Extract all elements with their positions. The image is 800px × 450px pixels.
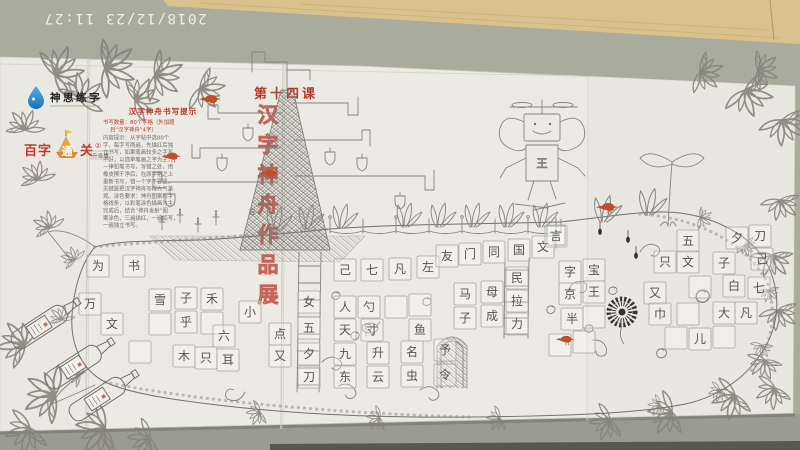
grid-cell: 国	[508, 239, 530, 261]
grid-cell-character: 子	[459, 311, 471, 325]
grid-cell-character: 马	[459, 287, 471, 301]
tips-body-line: 观。涂色要求：神舟图案和字	[103, 192, 173, 200]
grid-cell: 天	[334, 319, 356, 341]
grid-cell: 友	[436, 245, 458, 267]
grid-cell: 大	[713, 302, 735, 324]
grid-cell: 凡	[389, 258, 411, 280]
grid-cell: 母	[481, 281, 503, 303]
grid-cell: 凡	[735, 302, 757, 324]
grid-cell-character: 京	[564, 287, 576, 301]
tips-body-line: 完成后，结合“神舟发射”图	[103, 207, 168, 215]
grid-cell-character: 门	[464, 246, 476, 261]
grid-cell-box	[677, 303, 699, 325]
grid-cell-box	[409, 294, 431, 316]
grid-cell: 文	[101, 313, 123, 335]
grid-cell-character: 刀	[754, 229, 766, 243]
tips-body-line: 立书写，如果笔画较多之字写	[103, 148, 173, 156]
grid-cell: 六	[213, 325, 235, 347]
grid-cell-character: 儿	[694, 332, 706, 346]
grid-cell: 己	[751, 248, 773, 270]
grid-cell	[409, 294, 431, 316]
grid-cell: 予	[434, 339, 456, 361]
baizi-part2: 通	[62, 145, 73, 158]
grid-cell-character: 雪	[154, 293, 166, 307]
grid-cell: 又	[269, 345, 291, 367]
grid-cell-character: 拉	[511, 293, 523, 308]
grid-cell-character: 母	[486, 285, 498, 299]
grid-cell-character: 国	[513, 243, 525, 257]
grid-cell: 乎	[175, 311, 197, 333]
grid-cell-character: 左	[422, 259, 434, 274]
grid-cell-box	[713, 326, 735, 348]
tips-title: 汉字神舟书写提示	[129, 106, 198, 116]
grid-cell: 又	[644, 282, 666, 304]
grid-cell-character: 己	[339, 263, 351, 277]
grid-cell: 刀	[298, 366, 320, 388]
tips-body-line: 橡皮擦干净后，在原字格之上	[103, 170, 174, 178]
grid-cell: 只	[195, 347, 217, 369]
tips-body-line: 关键是把汉字神舟写得大气美	[103, 185, 174, 193]
grid-cell-character: 木	[178, 349, 190, 363]
grid-cell-character: 予	[439, 343, 451, 357]
grid-cell: 九	[334, 343, 356, 365]
grid-cell-character: 人	[339, 300, 351, 314]
grid-cell: 女	[298, 291, 320, 313]
grid-cell-character: 文	[682, 254, 694, 269]
grid-cell: 雪	[149, 289, 171, 311]
grid-cell-character: 王	[588, 285, 600, 299]
grid-cell: 只	[654, 251, 676, 273]
grid-cell-character: 升	[372, 346, 384, 360]
grid-cell: 木	[173, 345, 195, 367]
grid-cell: 夕	[298, 343, 320, 365]
grid-cell	[385, 296, 407, 318]
grid-cell: 为	[87, 255, 109, 277]
grid-cell-character: 又	[274, 349, 286, 363]
tips-body-line: 内容提示：从字帖中选80个	[103, 134, 170, 142]
grid-cell-character: 耳	[222, 353, 234, 367]
grid-cell-character: 字	[564, 264, 576, 279]
grid-cell-character: 云	[372, 370, 384, 384]
grid-cell: 马	[454, 283, 476, 305]
robot-eye	[534, 123, 536, 125]
grid-cell: 七	[361, 259, 383, 281]
grid-cell-character: 成	[486, 309, 498, 323]
tips-redline-1: 书写数量：80个字格（外加题	[103, 118, 175, 126]
grid-cell: 七	[748, 277, 770, 299]
grid-cell: 寸	[361, 319, 383, 341]
grid-cell-character: 九	[339, 347, 351, 361]
grid-cell: 拉	[506, 290, 528, 312]
grid-cell: 子	[713, 252, 735, 274]
grid-cell-character: 民	[511, 271, 523, 285]
grid-cell: 禾	[201, 288, 223, 310]
grid-cell-character: 宝	[588, 263, 600, 277]
grid-cell-character: 力	[511, 317, 523, 331]
grid-cell	[689, 276, 711, 298]
grid-cell: 力	[506, 313, 528, 335]
grid-cell-character: 只	[200, 351, 212, 365]
grid-cell-character: 五	[682, 234, 694, 248]
tips-body-line: 案涂色，三遍描红，一遍临写，	[103, 214, 178, 222]
tips-redline-2: 目“汉字神舟”4字）	[110, 126, 157, 134]
grid-cell-character: 为	[92, 259, 104, 273]
grid-cell-character: 小	[244, 305, 256, 319]
grid-cell-box	[665, 327, 687, 349]
grid-cell-character: 子	[180, 291, 192, 305]
grid-cell: 人	[334, 296, 356, 318]
tips-body-line: 重新书写，错一个字不要紧，	[103, 177, 173, 185]
grid-cell: 儿	[689, 328, 711, 350]
drop-highlight	[32, 97, 35, 100]
grid-cell	[583, 306, 605, 328]
grid-cell-character: 又	[649, 286, 661, 300]
grid-cell-character: 言	[550, 229, 562, 243]
grid-cell-character: 六	[218, 329, 230, 343]
grid-cell: 书	[123, 255, 145, 277]
grid-cell-character: 文	[106, 316, 118, 331]
grid-cell: 白	[723, 275, 745, 297]
grid-cell-box	[149, 313, 171, 335]
grid-cell-character: 五	[303, 321, 315, 335]
grid-cell-character: 天	[339, 323, 351, 337]
grid-cell-character: 刀	[303, 370, 315, 384]
grid-cell-character: 巾	[654, 307, 666, 321]
grid-cell: 虫	[401, 365, 423, 387]
grid-cell: 同	[483, 241, 505, 263]
tips-body-line: 格线条，以彩笔涂色描画为主，	[103, 199, 178, 207]
grid-cell-character: 鱼	[414, 323, 426, 337]
baizi-part1: 百字	[24, 143, 52, 159]
grid-cell: 耳	[217, 349, 239, 371]
grid-cell: 东	[334, 366, 356, 388]
grid-cell-character: 书	[128, 259, 140, 273]
grid-cell: 京	[559, 283, 581, 305]
grid-cell	[149, 313, 171, 335]
tips-body-line: 一律铅笔书写，写错之处，用	[103, 163, 173, 171]
grid-cell: 名	[401, 341, 423, 363]
grid-cell-box	[385, 296, 407, 318]
grid-cell-box	[573, 331, 595, 353]
grid-cell-character: 只	[659, 255, 671, 269]
camera-timestamp: 2018/12/23 11:27	[43, 10, 207, 26]
grid-cell: 五	[677, 230, 699, 252]
grid-cell-character: 虫	[406, 369, 418, 383]
grid-cell-character: 点	[274, 327, 286, 341]
grid-cell: 刀	[749, 225, 771, 247]
grid-cell: 民	[506, 267, 528, 289]
grid-cell	[129, 341, 151, 363]
grid-cell-character: 乎	[180, 315, 192, 329]
tree-character: 吉	[249, 208, 256, 216]
grid-cell-character: 友	[441, 249, 453, 263]
grid-cell: 巾	[649, 303, 671, 325]
grid-cell: 鱼	[409, 319, 431, 341]
grid-cell: 王	[583, 281, 605, 303]
grid-cell: 成	[481, 305, 503, 327]
tips-body-line: 字，每字写两遍，先描红后独	[103, 141, 174, 149]
grid-cell-character: 万	[84, 297, 96, 311]
grid-cell: 小	[239, 301, 261, 323]
grid-cell-character: 女	[303, 294, 315, 309]
grid-cell: 半	[561, 308, 583, 330]
grid-cell	[713, 326, 735, 348]
grid-cell: 子	[454, 307, 476, 329]
grid-cell-character: 七	[366, 263, 378, 277]
grid-cell	[677, 303, 699, 325]
grid-cell: 宝	[583, 259, 605, 281]
grid-cell-character: 东	[339, 370, 351, 384]
grid-cell: 子	[175, 287, 197, 309]
grid-cell: 字	[559, 261, 581, 283]
baizi-badge: ②	[95, 142, 101, 150]
grid-cell: 云	[367, 366, 389, 388]
grid-cell-character: 令	[439, 367, 451, 382]
grid-cell-box	[689, 276, 711, 298]
grid-cell: 文	[677, 251, 699, 273]
grid-cell-character: 同	[488, 245, 500, 259]
grid-cell-character: 勺	[363, 300, 375, 314]
grid-cell-box	[129, 341, 151, 363]
grid-cell: 门	[459, 243, 481, 265]
grid-cell-character: 大	[718, 306, 730, 320]
grid-cell-character: 凡	[394, 262, 406, 276]
grid-cell-character: 禾	[206, 292, 218, 306]
grid-cell-character: 己	[756, 252, 768, 266]
robot-chest-char: 王	[537, 157, 548, 170]
grid-cell: 点	[269, 323, 291, 345]
grid-cell-box	[583, 306, 605, 328]
photo-scene: 2018/12/23 11:27	[0, 0, 800, 450]
photo-of-worksheet: 2018/12/23 11:27	[0, 0, 800, 450]
grid-cell-character: 夕	[731, 231, 743, 245]
tips-body-line: 一遍独立书写。	[103, 221, 141, 229]
grid-cell-character: 夕	[303, 347, 315, 361]
grid-cell: 万	[79, 293, 101, 315]
grid-cell	[573, 331, 595, 353]
grid-cell: 己	[334, 259, 356, 281]
robot-eye	[549, 123, 551, 125]
grid-cell-character: 凡	[740, 306, 752, 320]
grid-cell-character: 子	[718, 256, 730, 270]
grid-cell: 五	[298, 317, 320, 339]
grid-cell-character: 半	[566, 312, 578, 326]
grid-cell-character: 七	[753, 281, 765, 295]
grid-cell-character: 名	[406, 344, 418, 359]
brand-shensi-label: 神思练字	[50, 91, 102, 104]
grid-cell: 令	[434, 364, 456, 386]
grid-cell: 夕	[726, 227, 748, 249]
grid-cell-character: 白	[728, 278, 740, 293]
grid-cell: 言	[545, 225, 567, 247]
grid-cell: 勺	[358, 296, 380, 318]
grid-cell: 升	[367, 342, 389, 364]
grid-cell	[665, 327, 687, 349]
grid-cell-character: 寸	[366, 323, 378, 337]
